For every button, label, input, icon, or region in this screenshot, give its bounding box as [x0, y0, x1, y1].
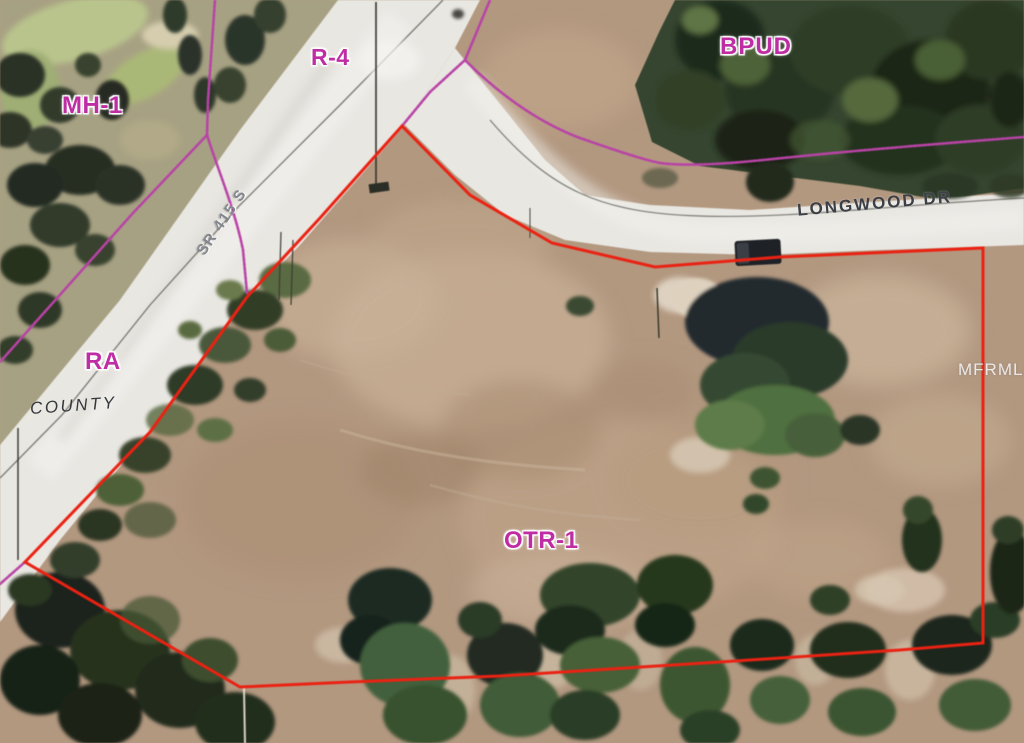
zoning-label-ra: RA — [85, 348, 121, 376]
watermark: MFRMLS — [958, 360, 1024, 380]
zoning-label-otr1: OTR-1 — [504, 527, 579, 555]
truck — [734, 239, 781, 266]
aerial-photo — [0, 0, 1024, 743]
zoning-label-mh1: MH-1 — [62, 92, 123, 120]
fence-line — [244, 688, 245, 743]
aerial-map: MH-1 R-4 BPUD RA OTR-1 SR 415 S COUNTY L… — [0, 0, 1024, 743]
zoning-label-r4: R-4 — [311, 44, 350, 71]
zoning-label-bpud: BPUD — [720, 33, 792, 61]
